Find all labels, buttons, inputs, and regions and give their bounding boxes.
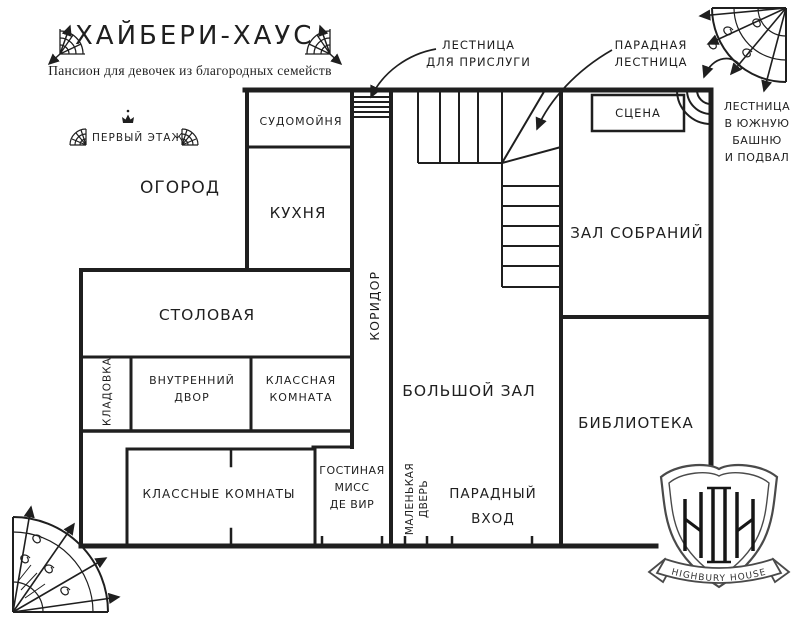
- room-label-library: БИБЛИОТЕКА: [564, 414, 708, 433]
- label-line: ПАРАДНЫЙ: [441, 482, 545, 507]
- label-line: ДЛЯ ПРИСЛУГИ: [406, 54, 551, 71]
- label-line: КОМНАТА: [249, 389, 353, 406]
- room-label-stage: СЦЕНА: [592, 106, 684, 120]
- servant-staircase: [354, 97, 391, 117]
- page-subtitle: Пансион для девочек из благородных семей…: [35, 63, 345, 80]
- label-line: ЛЕСТНИЦА: [406, 37, 551, 54]
- label-line: БАШНЮ: [712, 132, 800, 149]
- floorplan-page: HIGHBURY HOUSE ХАЙБЕРИ-ХАУС Пансион для …: [0, 0, 800, 617]
- room-label-classrooms: КЛАССНЫЕ КОМНАТЫ: [129, 487, 309, 502]
- label-line: ЛЕСТНИЦА: [712, 98, 800, 115]
- room-label-dining: СТОЛОВАЯ: [107, 306, 307, 325]
- page-title: ХАЙБЕРИ-ХАУС: [75, 20, 305, 53]
- label-line: ПАРАДНАЯ: [591, 37, 711, 54]
- floor-label: ПЕРВЫЙ ЭТАЖ: [92, 132, 176, 145]
- crown-ornament: [122, 110, 134, 123]
- label-line: КЛАССНАЯ: [249, 372, 353, 389]
- room-label-entrance: ПАРАДНЫЙ ВХОД: [441, 482, 545, 532]
- annotation-tower-stairs: ЛЕСТНИЦА В ЮЖНУЮ БАШНЮ И ПОДВАЛ: [712, 98, 800, 166]
- room-label-lounge: ГОСТИНАЯ МИСС ДЕ ВИР: [311, 462, 393, 513]
- fan-ornament-bottom-left: [13, 507, 119, 612]
- room-label-pantry: КЛАДОВКА: [101, 345, 114, 439]
- fan-ornament-top-right: [700, 8, 786, 91]
- label-line: И ПОДВАЛ: [712, 149, 800, 166]
- room-label-classroom: КЛАССНАЯ КОМНАТА: [249, 372, 353, 406]
- fan-ornament-floor-right: [182, 129, 198, 145]
- label-line: МИСС: [311, 479, 393, 496]
- label-line: ДВОР: [135, 389, 249, 406]
- label-line: ВНУТРЕННИЙ: [135, 372, 249, 389]
- label-line: ВХОД: [441, 507, 545, 532]
- room-label-small-door: МАЛЕНЬКАЯ ДВЕРЬ: [403, 453, 431, 545]
- label-line: В ЮЖНУЮ: [712, 115, 800, 132]
- room-label-corridor: КОРИДОР: [367, 258, 383, 354]
- label-line: ДВЕРЬ: [417, 453, 431, 545]
- crest: HIGHBURY HOUSE: [649, 465, 789, 587]
- room-label-assembly: ЗАЛ СОБРАНИЙ: [565, 224, 709, 243]
- annotation-servant-stairs: ЛЕСТНИЦА ДЛЯ ПРИСЛУГИ: [406, 37, 551, 70]
- annotation-grand-stairs: ПАРАДНАЯ ЛЕСТНИЦА: [591, 37, 711, 70]
- room-label-scullery: СУДОМОЙНЯ: [251, 115, 351, 129]
- label-line: ДЕ ВИР: [311, 496, 393, 513]
- room-label-kitchen: КУХНЯ: [248, 204, 348, 223]
- fan-ornament-floor-left: [70, 129, 86, 145]
- room-label-great-hall: БОЛЬШОЙ ЗАЛ: [391, 382, 547, 401]
- room-label-garden: ОГОРОД: [128, 178, 232, 199]
- label-line: МАЛЕНЬКАЯ: [403, 453, 417, 545]
- label-line: ЛЕСТНИЦА: [591, 54, 711, 71]
- label-line: ГОСТИНАЯ: [311, 462, 393, 479]
- grand-staircase: [418, 90, 561, 287]
- room-label-courtyard: ВНУТРЕННИЙ ДВОР: [135, 372, 249, 406]
